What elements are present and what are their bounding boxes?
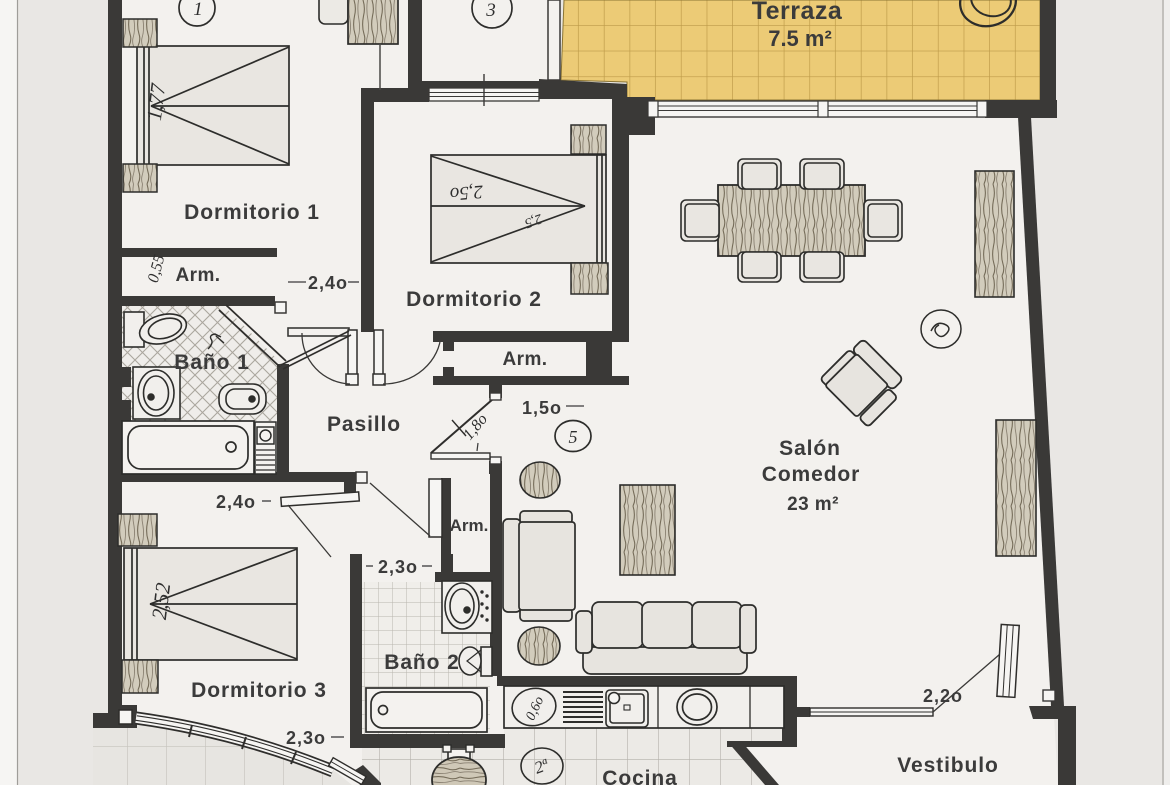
svg-text:Baño 2: Baño 2 — [384, 651, 459, 674]
svg-text:Dormitorio 3: Dormitorio 3 — [191, 679, 327, 702]
svg-text:2,3o: 2,3o — [286, 728, 326, 748]
svg-text:2,52: 2,52 — [147, 581, 175, 621]
svg-text:Cocina: Cocina — [602, 767, 677, 785]
svg-text:Comedor: Comedor — [762, 463, 860, 486]
svg-text:2,4o: 2,4o — [216, 492, 256, 512]
svg-text:Dormitorio 2: Dormitorio 2 — [406, 288, 542, 311]
svg-text:1: 1 — [193, 0, 203, 20]
svg-text:5: 5 — [569, 427, 578, 447]
svg-text:2,3o: 2,3o — [378, 557, 418, 577]
svg-text:1,77: 1,77 — [142, 81, 170, 122]
svg-text:2,2o: 2,2o — [923, 686, 963, 706]
svg-text:Salón: Salón — [779, 437, 841, 460]
svg-text:Baño 1: Baño 1 — [174, 351, 249, 374]
svg-text:2,4o: 2,4o — [308, 273, 348, 293]
svg-text:Arm.: Arm. — [176, 265, 221, 286]
svg-text:1,5o: 1,5o — [522, 398, 562, 418]
svg-text:Arm.: Arm. — [450, 516, 489, 535]
svg-text:3: 3 — [485, 0, 496, 21]
svg-text:2,5o: 2,5o — [449, 181, 484, 205]
svg-text:Vestibulo: Vestibulo — [897, 754, 998, 777]
svg-text:23 m²: 23 m² — [787, 494, 839, 515]
svg-text:Dormitorio 1: Dormitorio 1 — [184, 201, 320, 224]
svg-text:Arm.: Arm. — [503, 349, 548, 370]
svg-text:Terraza: Terraza — [752, 0, 843, 25]
svg-text:7.5 m²: 7.5 m² — [768, 26, 832, 51]
svg-text:Pasillo: Pasillo — [327, 413, 401, 436]
